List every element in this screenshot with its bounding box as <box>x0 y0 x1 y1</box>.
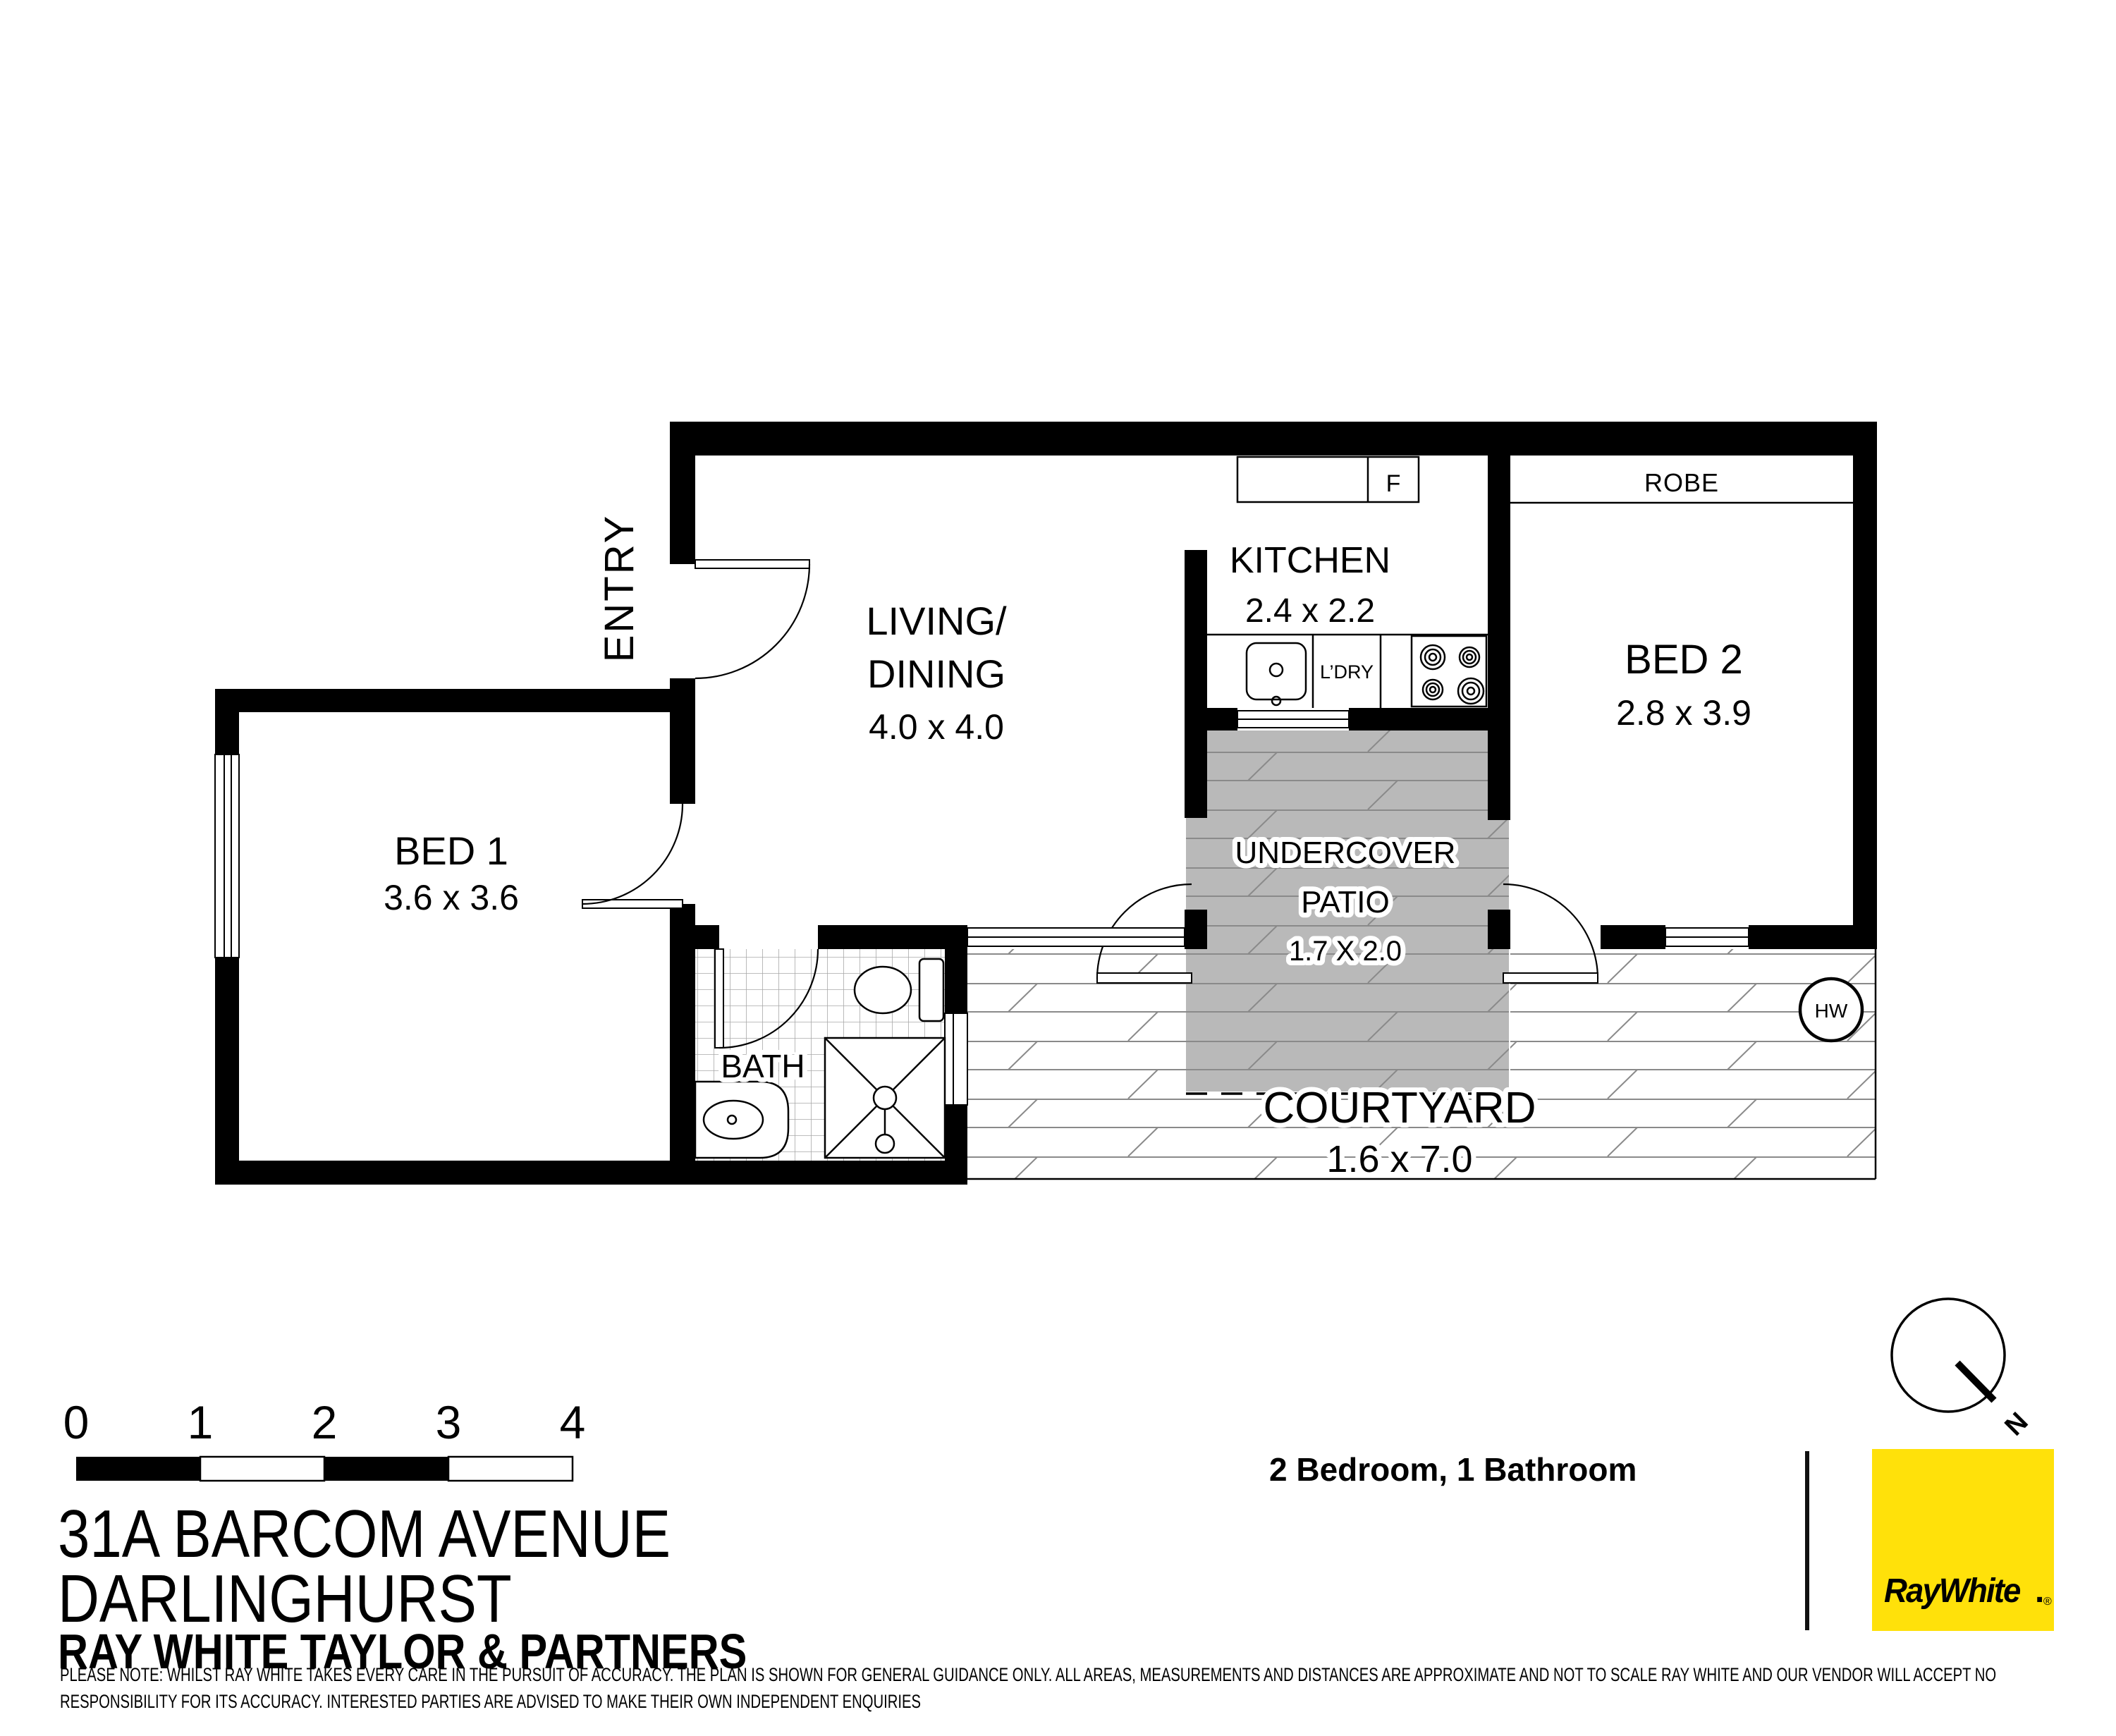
courtyard-dims: 1.6 x 7.0 <box>1326 1138 1472 1180</box>
bed1-dims: 3.6 x 3.6 <box>384 878 519 917</box>
wall-bed2-bottom-b <box>1749 925 1877 949</box>
raywhite-logo: RayWhite . ® <box>1872 1449 2054 1631</box>
hw-label: HW <box>1815 1000 1848 1022</box>
shower-drain <box>874 1087 896 1109</box>
living-dims: 4.0 x 4.0 <box>869 707 1004 747</box>
wall-kitchen-bottom-left <box>1185 708 1237 731</box>
compass: N <box>1892 1299 2033 1441</box>
scale-bar: 0 1 2 3 4 <box>63 1396 586 1481</box>
wall-bed1-top <box>215 689 670 712</box>
patio-label-line2: PATIO <box>1301 885 1390 919</box>
disclaimer-line2: RESPONSIBILITY FOR ITS ACCURACY. INTERES… <box>60 1691 921 1713</box>
wall-top <box>670 422 1877 456</box>
scale-tick-2: 2 <box>312 1396 338 1448</box>
raywhite-logo-text: RayWhite <box>1884 1572 2020 1609</box>
shower <box>825 1038 945 1158</box>
wall-living-bottom-a <box>670 925 719 949</box>
disclaimer-line1: PLEASE NOTE: WHILST RAY WHITE TAKES EVER… <box>60 1664 1996 1686</box>
wall-patio-left-lower <box>1185 910 1207 949</box>
entry-label: ENTRY <box>597 514 642 663</box>
scale-tick-3: 3 <box>436 1396 462 1448</box>
patio-right-door-leaf <box>1503 973 1598 983</box>
bed2-label: BED 2 <box>1625 637 1743 683</box>
wall-bath-right-lower <box>945 1105 967 1161</box>
wall-kitchen-left <box>1185 550 1207 708</box>
courtyard-label: COURTYARD <box>1264 1084 1536 1132</box>
bed1-door-leaf <box>582 900 683 908</box>
scale-tick-0: 0 <box>63 1396 90 1448</box>
entry-door-arc <box>695 564 809 678</box>
floorplan-page: HW N ENTRY LIVING/ DINING 4.0 x 4.0 KITC… <box>0 0 2116 1736</box>
wall-living-left-mid <box>670 678 695 804</box>
wall-bed1-bath-bottom <box>215 1161 967 1185</box>
wall-patio-right-lower <box>1488 910 1510 949</box>
bed2-dims: 2.8 x 3.9 <box>1616 693 1751 733</box>
living-label-line2: DINING <box>867 652 1005 696</box>
wall-bath-right-upper <box>945 925 967 1013</box>
features-text: 2 Bedroom, 1 Bathroom <box>1269 1451 1637 1488</box>
wall-bed1-left-lower <box>215 958 239 1185</box>
bath-label: BATH <box>721 1048 805 1084</box>
patio-label-line1: UNDERCOVER <box>1235 836 1456 870</box>
laundry-label: L’DRY <box>1320 661 1374 683</box>
kitchen-label: KITCHEN <box>1230 540 1390 581</box>
wall-living-left-upper <box>670 456 695 564</box>
living-label-line1: LIVING/ <box>866 599 1007 643</box>
living-courtyard-window <box>967 928 1185 946</box>
floorplan-canvas: HW N ENTRY LIVING/ DINING 4.0 x 4.0 KITC… <box>0 0 2116 1736</box>
kitchen-sink <box>1247 643 1306 699</box>
wall-kitchen-bed2 <box>1488 456 1510 820</box>
robe-label: ROBE <box>1644 468 1719 497</box>
toilet-cistern <box>919 959 943 1021</box>
hot-water-unit: HW <box>1800 979 1862 1041</box>
compass-north-label: N <box>1998 1406 2033 1441</box>
kitchen-dims: 2.4 x 2.2 <box>1245 592 1375 630</box>
scale-tick-1: 1 <box>188 1396 214 1448</box>
wall-bed2-right <box>1853 422 1877 949</box>
patio-left-door-leaf <box>1097 973 1192 983</box>
kitchen-servery-window <box>1237 711 1349 728</box>
entry-door-leaf <box>695 560 809 568</box>
bed1-window <box>215 754 239 958</box>
toilet-bowl <box>855 967 911 1013</box>
bed2-courtyard-window <box>1665 928 1749 946</box>
shower-mixer <box>876 1135 894 1153</box>
footer: 31A BARCOM AVENUE DARLINGHURST RAY WHITE… <box>58 1449 2054 1713</box>
bed1-label: BED 1 <box>394 829 508 873</box>
raywhite-logo-registered: ® <box>2043 1596 2052 1608</box>
scale-tick-4: 4 <box>560 1396 586 1448</box>
patio-dims: 1.7 X 2.0 <box>1289 936 1402 967</box>
wall-bed2-bottom-a <box>1601 925 1665 949</box>
stove <box>1412 636 1486 707</box>
wall-kitchen-bottom-right <box>1349 708 1510 731</box>
bath-glass-panel <box>945 1013 967 1105</box>
bed1-door-arc <box>582 804 683 904</box>
bath-door-leaf <box>715 949 723 1048</box>
vanity <box>695 1082 788 1158</box>
footer-divider <box>1805 1451 1809 1630</box>
wall-bed1-left-upper <box>215 689 239 754</box>
fridge-label: F <box>1386 470 1401 497</box>
